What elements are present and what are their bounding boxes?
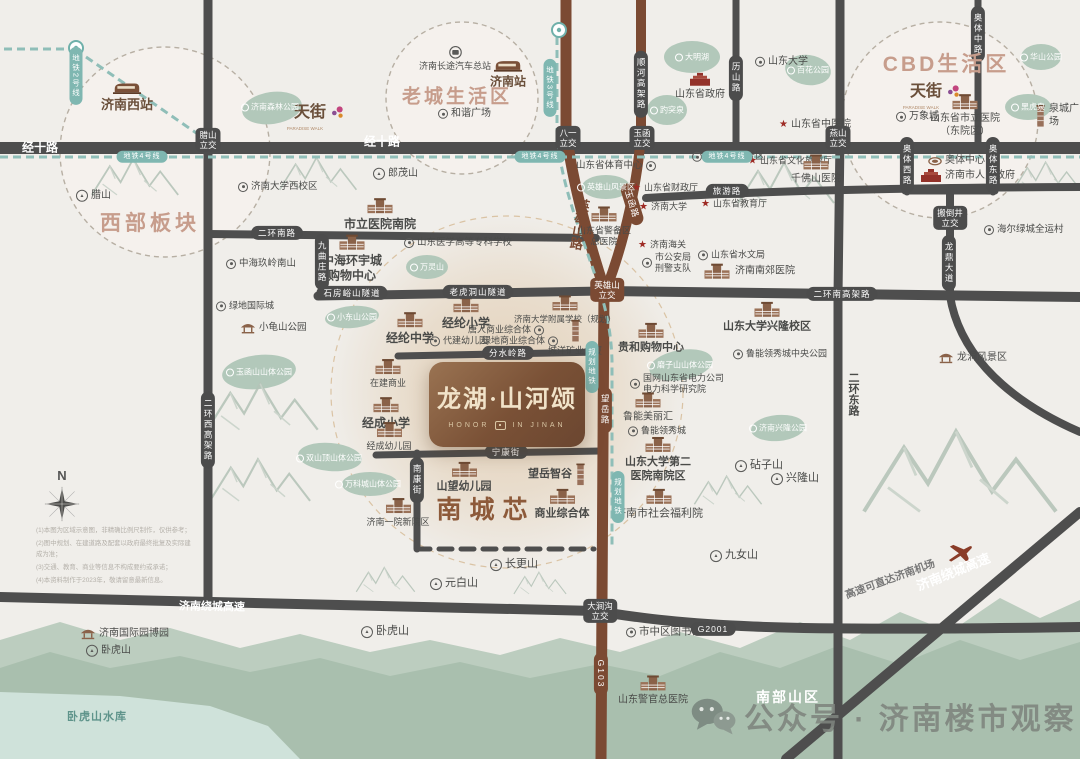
disclaimer-line: (3)交通、教育、商业等信息不构成要约或承诺；	[36, 563, 196, 574]
disclaimer-line: (4)本资料制作于2023年，敬请留意最新信息。	[36, 576, 196, 587]
project-subtitle-right: IN JINAN	[512, 422, 565, 429]
disclaimer: (1)本图为区域示意图，非精确比例尺制作，仅供参考；(2)图中规划、在建道路及配…	[36, 526, 196, 588]
project-subtitle: HONOR IN JINAN	[448, 421, 565, 430]
brand-seal-icon	[495, 421, 506, 430]
wechat-icon	[690, 696, 736, 736]
project-title: 龙湖·山河颂	[437, 379, 577, 414]
map-canvas: 济南西站济南站济南长途汽车总站和谐广场山东大学山东省政府泉城广场万象城山东省市立…	[0, 0, 1080, 759]
compass-label: N	[57, 468, 66, 483]
compass: N	[44, 468, 80, 522]
project-brand-plate: 龙湖·山河颂 HONOR IN JINAN	[429, 362, 585, 447]
project-subtitle-left: HONOR	[448, 422, 489, 429]
watermark-text: 公众号 · 济南楼市观察	[744, 694, 1077, 738]
disclaimer-line: (1)本图为区域示意图，非精确比例尺制作，仅供参考；	[36, 526, 196, 537]
watermark: 公众号 · 济南楼市观察	[690, 694, 1077, 738]
compass-icon	[44, 486, 80, 522]
disclaimer-line: (2)图中规划、在建道路及配套以政府最终批复及实际建成为准；	[36, 539, 196, 561]
